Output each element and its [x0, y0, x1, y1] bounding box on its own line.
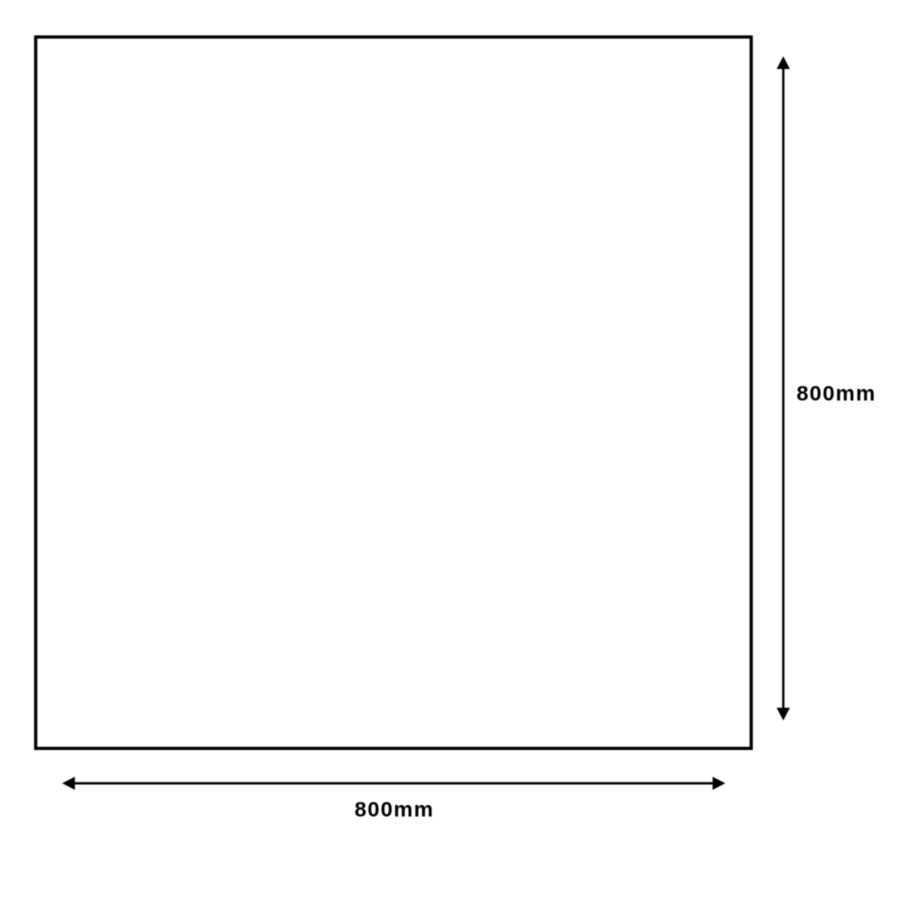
svg-text:800mm: 800mm: [797, 382, 877, 406]
svg-text:800mm: 800mm: [354, 798, 434, 822]
